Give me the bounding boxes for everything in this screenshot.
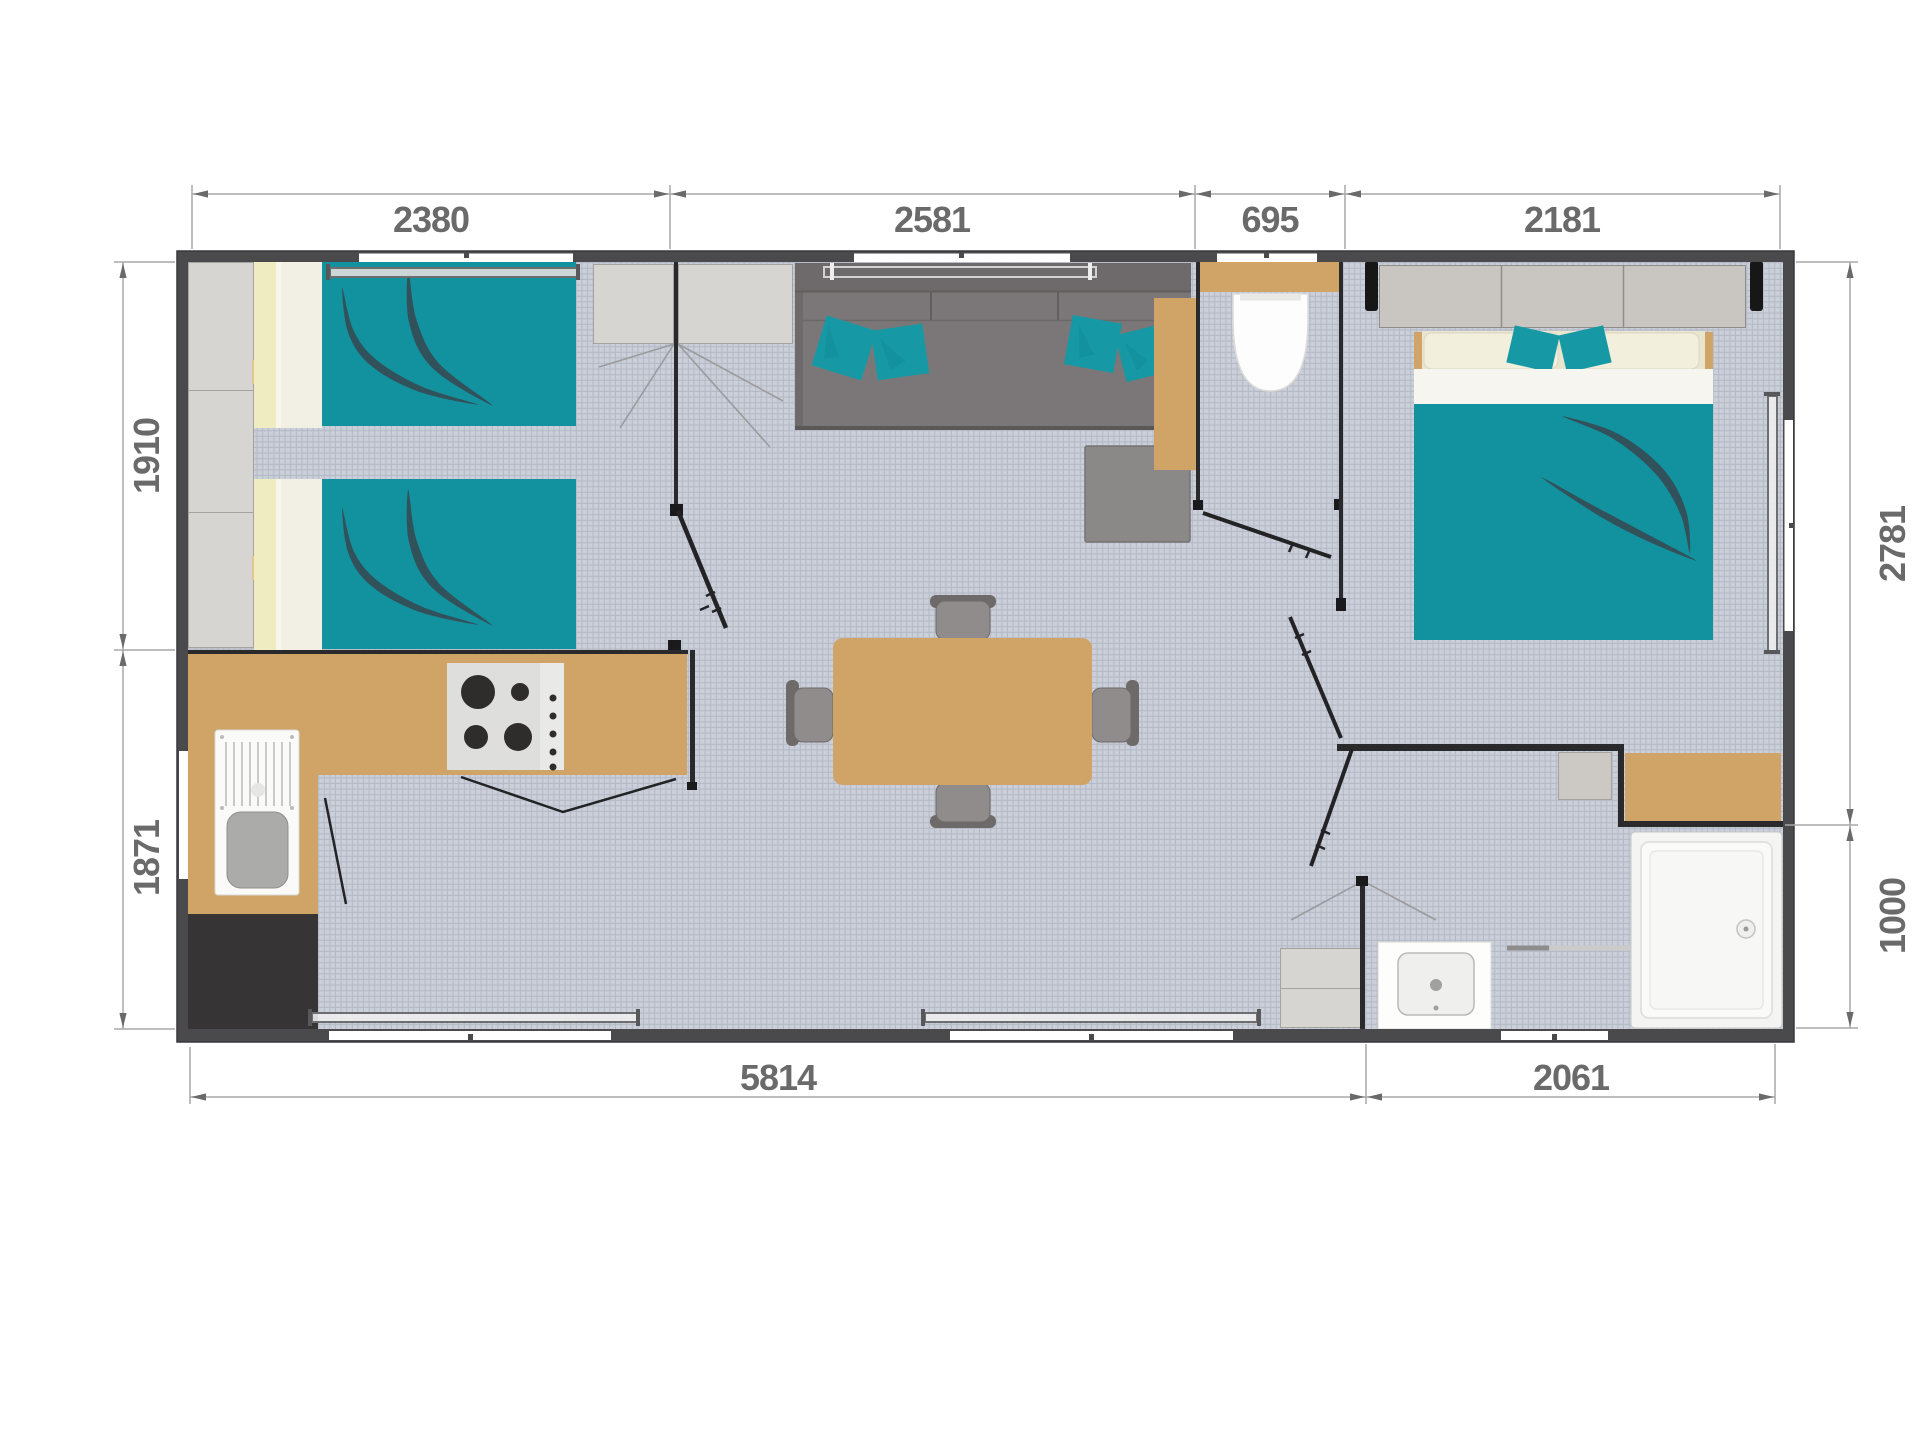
svg-text:2781: 2781 xyxy=(1872,505,1913,582)
svg-text:5814: 5814 xyxy=(740,1057,817,1098)
svg-text:2061: 2061 xyxy=(1533,1057,1610,1098)
svg-text:1871: 1871 xyxy=(126,819,167,896)
svg-text:695: 695 xyxy=(1241,199,1299,240)
svg-text:2581: 2581 xyxy=(894,199,971,240)
svg-text:1000: 1000 xyxy=(1872,878,1913,954)
svg-text:1910: 1910 xyxy=(126,418,167,494)
svg-text:2181: 2181 xyxy=(1524,199,1601,240)
svg-text:2380: 2380 xyxy=(393,199,469,240)
